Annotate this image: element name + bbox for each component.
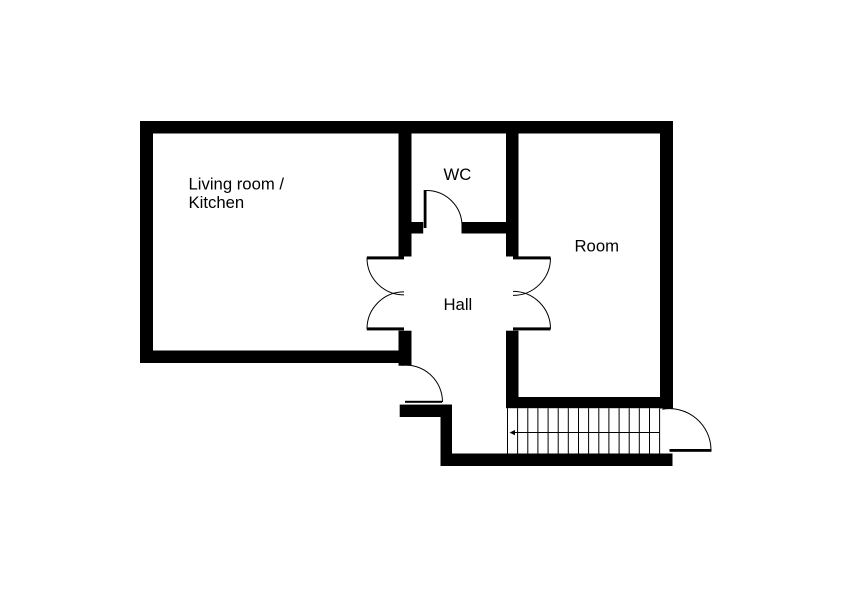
svg-text:Kitchen: Kitchen xyxy=(189,193,245,212)
svg-text:Room: Room xyxy=(575,237,620,256)
svg-text:Living room /: Living room / xyxy=(189,175,285,194)
svg-text:WC: WC xyxy=(444,165,472,184)
svg-text:Hall: Hall xyxy=(444,295,473,314)
